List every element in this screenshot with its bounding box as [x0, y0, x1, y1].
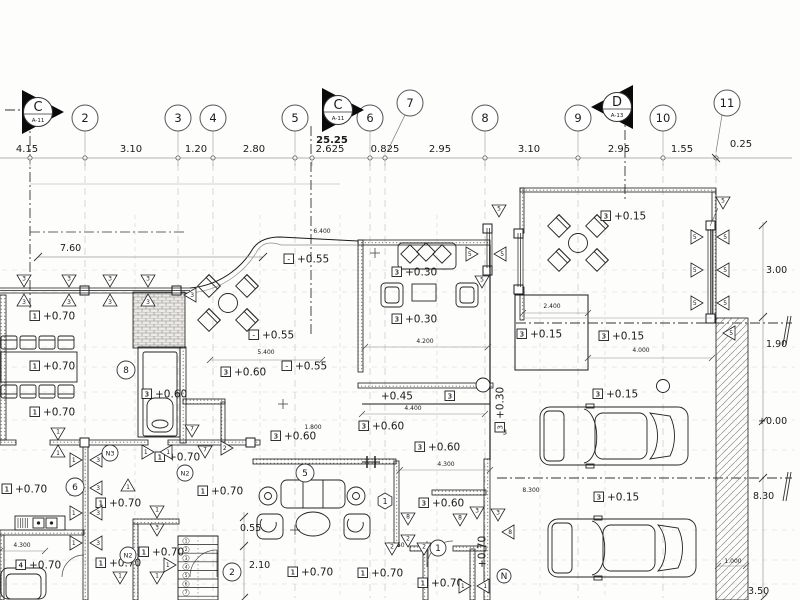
- svg-text:4.400: 4.400: [404, 405, 421, 412]
- svg-text:+0.70: +0.70: [371, 568, 403, 580]
- svg-text:+0.30: +0.30: [405, 314, 437, 326]
- svg-text:8.300: 8.300: [522, 487, 539, 494]
- svg-text:+0.55: +0.55: [297, 254, 329, 266]
- svg-text:5: 5: [693, 300, 697, 307]
- svg-text:1: 1: [56, 429, 60, 436]
- svg-text:3: 3: [96, 510, 100, 517]
- svg-text:3: 3: [190, 292, 194, 299]
- grid-bubbles: [22, 85, 740, 152]
- svg-text:3: 3: [395, 316, 399, 324]
- svg-text:3: 3: [96, 540, 100, 547]
- svg-text:1: 1: [382, 497, 387, 506]
- svg-text:+0.60: +0.60: [432, 498, 464, 510]
- svg-text:N2: N2: [181, 469, 190, 477]
- svg-text:8: 8: [458, 515, 462, 522]
- svg-text:3: 3: [496, 510, 500, 517]
- room-tags: [66, 361, 511, 583]
- svg-text:1: 1: [56, 450, 60, 457]
- svg-text:2: 2: [406, 536, 410, 543]
- svg-text:3: 3: [146, 299, 150, 306]
- svg-text:+0.60: +0.60: [284, 431, 316, 443]
- svg-text:3: 3: [96, 457, 100, 464]
- floor-plan: 12345674.153.101.202.802.6250.8252.953.1…: [0, 0, 800, 600]
- svg-text:3: 3: [520, 331, 524, 339]
- svg-text:2: 2: [81, 111, 88, 125]
- svg-text:+0.15: +0.15: [606, 389, 638, 401]
- svg-text:2: 2: [390, 544, 394, 551]
- svg-text:A-11: A-11: [32, 118, 45, 124]
- svg-text:C: C: [33, 100, 42, 115]
- svg-text:11: 11: [720, 96, 735, 110]
- svg-text:5: 5: [291, 111, 298, 125]
- svg-text:+0.60: +0.60: [155, 389, 187, 401]
- svg-text:3: 3: [362, 423, 366, 431]
- svg-text:7: 7: [185, 590, 188, 596]
- svg-text:+0.30: +0.30: [405, 267, 437, 279]
- svg-text:3: 3: [67, 276, 71, 283]
- svg-text:4: 4: [209, 111, 216, 125]
- svg-text:8: 8: [481, 111, 488, 125]
- svg-text:3: 3: [96, 485, 100, 492]
- svg-text:5: 5: [185, 573, 188, 579]
- svg-text:1: 1: [99, 560, 103, 568]
- svg-text:2.10: 2.10: [249, 560, 270, 571]
- svg-text:5: 5: [723, 267, 727, 274]
- svg-text:1: 1: [155, 507, 159, 514]
- svg-text:+0.70: +0.70: [43, 407, 75, 419]
- svg-text:0.55: 0.55: [240, 523, 261, 534]
- svg-text:+0.70: +0.70: [152, 547, 184, 559]
- svg-text:+0.70: +0.70: [43, 311, 75, 323]
- svg-text:5: 5: [302, 469, 308, 479]
- svg-text:4: 4: [185, 564, 188, 570]
- svg-text:A-11: A-11: [332, 116, 345, 122]
- svg-text:1: 1: [72, 510, 76, 517]
- svg-text:N3: N3: [106, 449, 115, 457]
- svg-text:+0.70: +0.70: [431, 578, 463, 590]
- svg-text:5: 5: [723, 234, 727, 241]
- svg-text:3: 3: [108, 276, 112, 283]
- svg-text:7: 7: [203, 447, 207, 454]
- svg-text:4.000: 4.000: [632, 347, 649, 354]
- svg-text:3: 3: [604, 213, 608, 221]
- svg-text:+0.30: +0.30: [495, 387, 507, 419]
- svg-text:2: 2: [185, 547, 188, 553]
- svg-text:+0.60: +0.60: [372, 421, 404, 433]
- svg-text:3: 3: [224, 369, 228, 377]
- svg-text:N: N: [501, 572, 508, 582]
- svg-text:+0.60: +0.60: [428, 442, 460, 454]
- svg-text:0.25: 0.25: [730, 139, 752, 150]
- svg-text:3: 3: [67, 299, 71, 306]
- svg-text:1: 1: [155, 573, 159, 580]
- svg-text:3.00: 3.00: [766, 265, 787, 276]
- svg-text:1: 1: [483, 583, 487, 590]
- svg-text:1: 1: [5, 486, 9, 494]
- svg-text:+0.70: +0.70: [301, 567, 333, 579]
- svg-text:2: 2: [223, 445, 227, 452]
- svg-text:3: 3: [108, 299, 112, 306]
- svg-text:1: 1: [142, 549, 146, 557]
- floor-plan-canvas: 12345674.153.101.202.802.6250.8252.953.1…: [0, 0, 800, 600]
- svg-text:4.300: 4.300: [13, 542, 30, 549]
- svg-text:7.60: 7.60: [60, 243, 81, 254]
- svg-text:8: 8: [406, 514, 410, 521]
- svg-text:3: 3: [22, 299, 26, 306]
- svg-text:3: 3: [155, 525, 159, 532]
- svg-text:1: 1: [461, 583, 465, 590]
- svg-text:3: 3: [475, 508, 479, 515]
- svg-text:2: 2: [229, 568, 235, 578]
- svg-text:+0.15: +0.15: [607, 492, 639, 504]
- svg-text:+0.15: +0.15: [612, 331, 644, 343]
- svg-text:6: 6: [366, 111, 373, 125]
- svg-text:4.15: 4.15: [16, 144, 38, 155]
- svg-text:10: 10: [656, 111, 671, 125]
- svg-text:1: 1: [421, 580, 425, 588]
- svg-text:5: 5: [721, 198, 725, 205]
- svg-text:3: 3: [145, 391, 149, 399]
- svg-text:3: 3: [422, 500, 426, 508]
- svg-text:5: 5: [723, 300, 727, 307]
- svg-text:+0.70: +0.70: [43, 361, 75, 373]
- svg-text:+0.15: +0.15: [614, 211, 646, 223]
- svg-text:3: 3: [274, 433, 278, 441]
- svg-text:5: 5: [693, 267, 697, 274]
- svg-text:+0.55: +0.55: [295, 361, 327, 373]
- svg-text:1: 1: [291, 569, 295, 577]
- svg-text:1: 1: [201, 488, 205, 496]
- svg-text:5: 5: [468, 251, 472, 258]
- svg-text:3.10: 3.10: [120, 144, 142, 155]
- svg-text:1: 1: [33, 313, 37, 321]
- svg-text:8.30: 8.30: [753, 491, 774, 502]
- svg-text:25.25: 25.25: [316, 135, 348, 146]
- svg-text:N2: N2: [124, 551, 133, 559]
- svg-text:3: 3: [503, 429, 507, 437]
- svg-text:1: 1: [33, 363, 37, 371]
- svg-text:1.55: 1.55: [671, 144, 693, 155]
- svg-text:3: 3: [418, 444, 422, 452]
- svg-text:1: 1: [144, 449, 148, 456]
- svg-text:4.300: 4.300: [437, 461, 454, 468]
- svg-text:+0.70: +0.70: [211, 486, 243, 498]
- svg-text:4: 4: [19, 562, 24, 570]
- svg-text:5: 5: [500, 251, 504, 258]
- svg-text:3: 3: [448, 393, 452, 401]
- svg-text:3: 3: [597, 494, 601, 502]
- svg-text:A-13: A-13: [611, 113, 624, 119]
- svg-text:C: C: [333, 98, 342, 113]
- svg-text:3.10: 3.10: [518, 144, 540, 155]
- section-marker: [22, 90, 64, 134]
- svg-text:1.90: 1.90: [766, 339, 787, 350]
- svg-text:+0.00: +0.00: [758, 416, 787, 427]
- svg-text:5: 5: [480, 277, 484, 284]
- svg-text:6.400: 6.400: [313, 228, 330, 235]
- svg-text:3: 3: [596, 391, 600, 399]
- svg-text:2.95: 2.95: [429, 144, 451, 155]
- svg-text:+0.70: +0.70: [29, 560, 61, 572]
- svg-text:1: 1: [33, 409, 37, 417]
- svg-text:+0.70: +0.70: [15, 484, 47, 496]
- svg-text:1.000: 1.000: [724, 558, 741, 565]
- svg-text:5: 5: [729, 330, 733, 337]
- svg-text:1: 1: [72, 540, 76, 547]
- section-marker: [322, 88, 364, 132]
- svg-text:1: 1: [166, 562, 170, 569]
- svg-text:5: 5: [693, 234, 697, 241]
- svg-text:3: 3: [395, 269, 399, 277]
- svg-text:1: 1: [361, 570, 365, 578]
- svg-text:0.825: 0.825: [371, 144, 400, 155]
- svg-text:1: 1: [72, 457, 76, 464]
- svg-text:+0.70: +0.70: [168, 452, 200, 464]
- svg-text:+0.60: +0.60: [234, 367, 266, 379]
- svg-text:2.400: 2.400: [543, 303, 560, 310]
- svg-text:4.200: 4.200: [416, 338, 433, 345]
- svg-text:3.50: 3.50: [748, 586, 769, 597]
- svg-text:3: 3: [22, 276, 26, 283]
- svg-text:1: 1: [435, 544, 441, 554]
- svg-text:3: 3: [146, 276, 150, 283]
- svg-text:7: 7: [190, 426, 194, 433]
- svg-text:3: 3: [602, 333, 606, 341]
- svg-text:3: 3: [185, 556, 188, 562]
- svg-text:2.80: 2.80: [243, 144, 265, 155]
- svg-text:+0.15: +0.15: [530, 329, 562, 341]
- svg-text:D: D: [612, 95, 622, 110]
- svg-text:1: 1: [158, 454, 162, 462]
- svg-text:+0.45: +0.45: [381, 391, 413, 403]
- svg-text:1: 1: [166, 449, 170, 456]
- svg-text:8: 8: [508, 529, 512, 536]
- svg-text:8: 8: [123, 366, 129, 376]
- svg-text:6: 6: [72, 483, 78, 493]
- svg-text:+0.55: +0.55: [262, 330, 294, 342]
- svg-text:7: 7: [406, 96, 413, 110]
- svg-text:+0.70: +0.70: [477, 536, 489, 568]
- svg-text:1: 1: [126, 484, 130, 491]
- svg-text:2: 2: [422, 544, 426, 551]
- svg-text:1.20: 1.20: [185, 144, 207, 155]
- svg-text:1: 1: [118, 573, 122, 580]
- svg-text:5.400: 5.400: [257, 349, 274, 356]
- svg-text:+0.70: +0.70: [109, 498, 141, 510]
- svg-text:3: 3: [174, 111, 181, 125]
- svg-text:5: 5: [497, 206, 501, 213]
- svg-text:1: 1: [185, 539, 188, 545]
- svg-text:9: 9: [574, 111, 581, 125]
- svg-text:6: 6: [185, 582, 188, 588]
- furniture: [1, 215, 696, 599]
- svg-text:2.95: 2.95: [608, 144, 630, 155]
